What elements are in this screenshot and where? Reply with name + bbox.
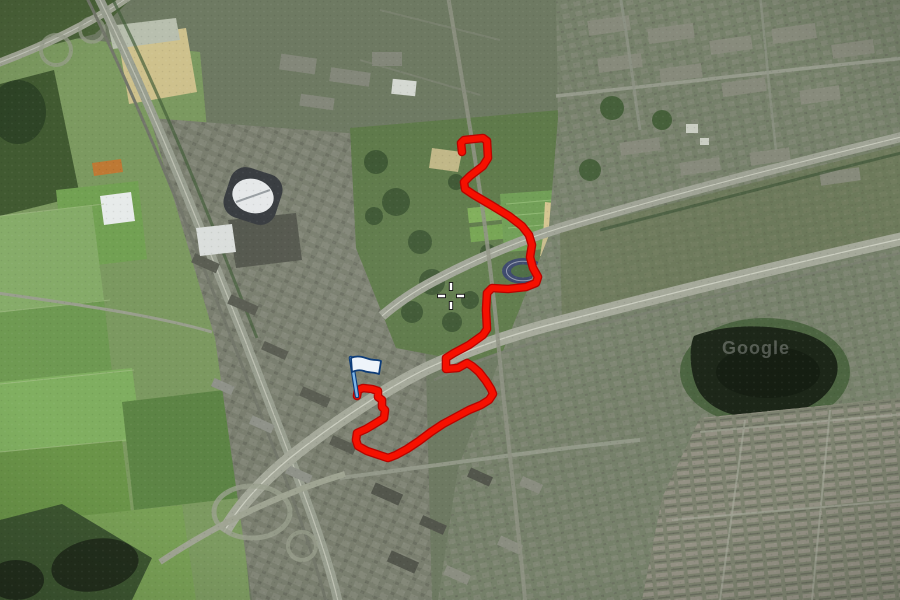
google-watermark: Google — [722, 338, 790, 358]
satellite-map-viewport[interactable]: Google — [0, 0, 900, 600]
satellite-imagery — [0, 0, 900, 600]
satellite-map[interactable]: Google — [0, 0, 900, 600]
